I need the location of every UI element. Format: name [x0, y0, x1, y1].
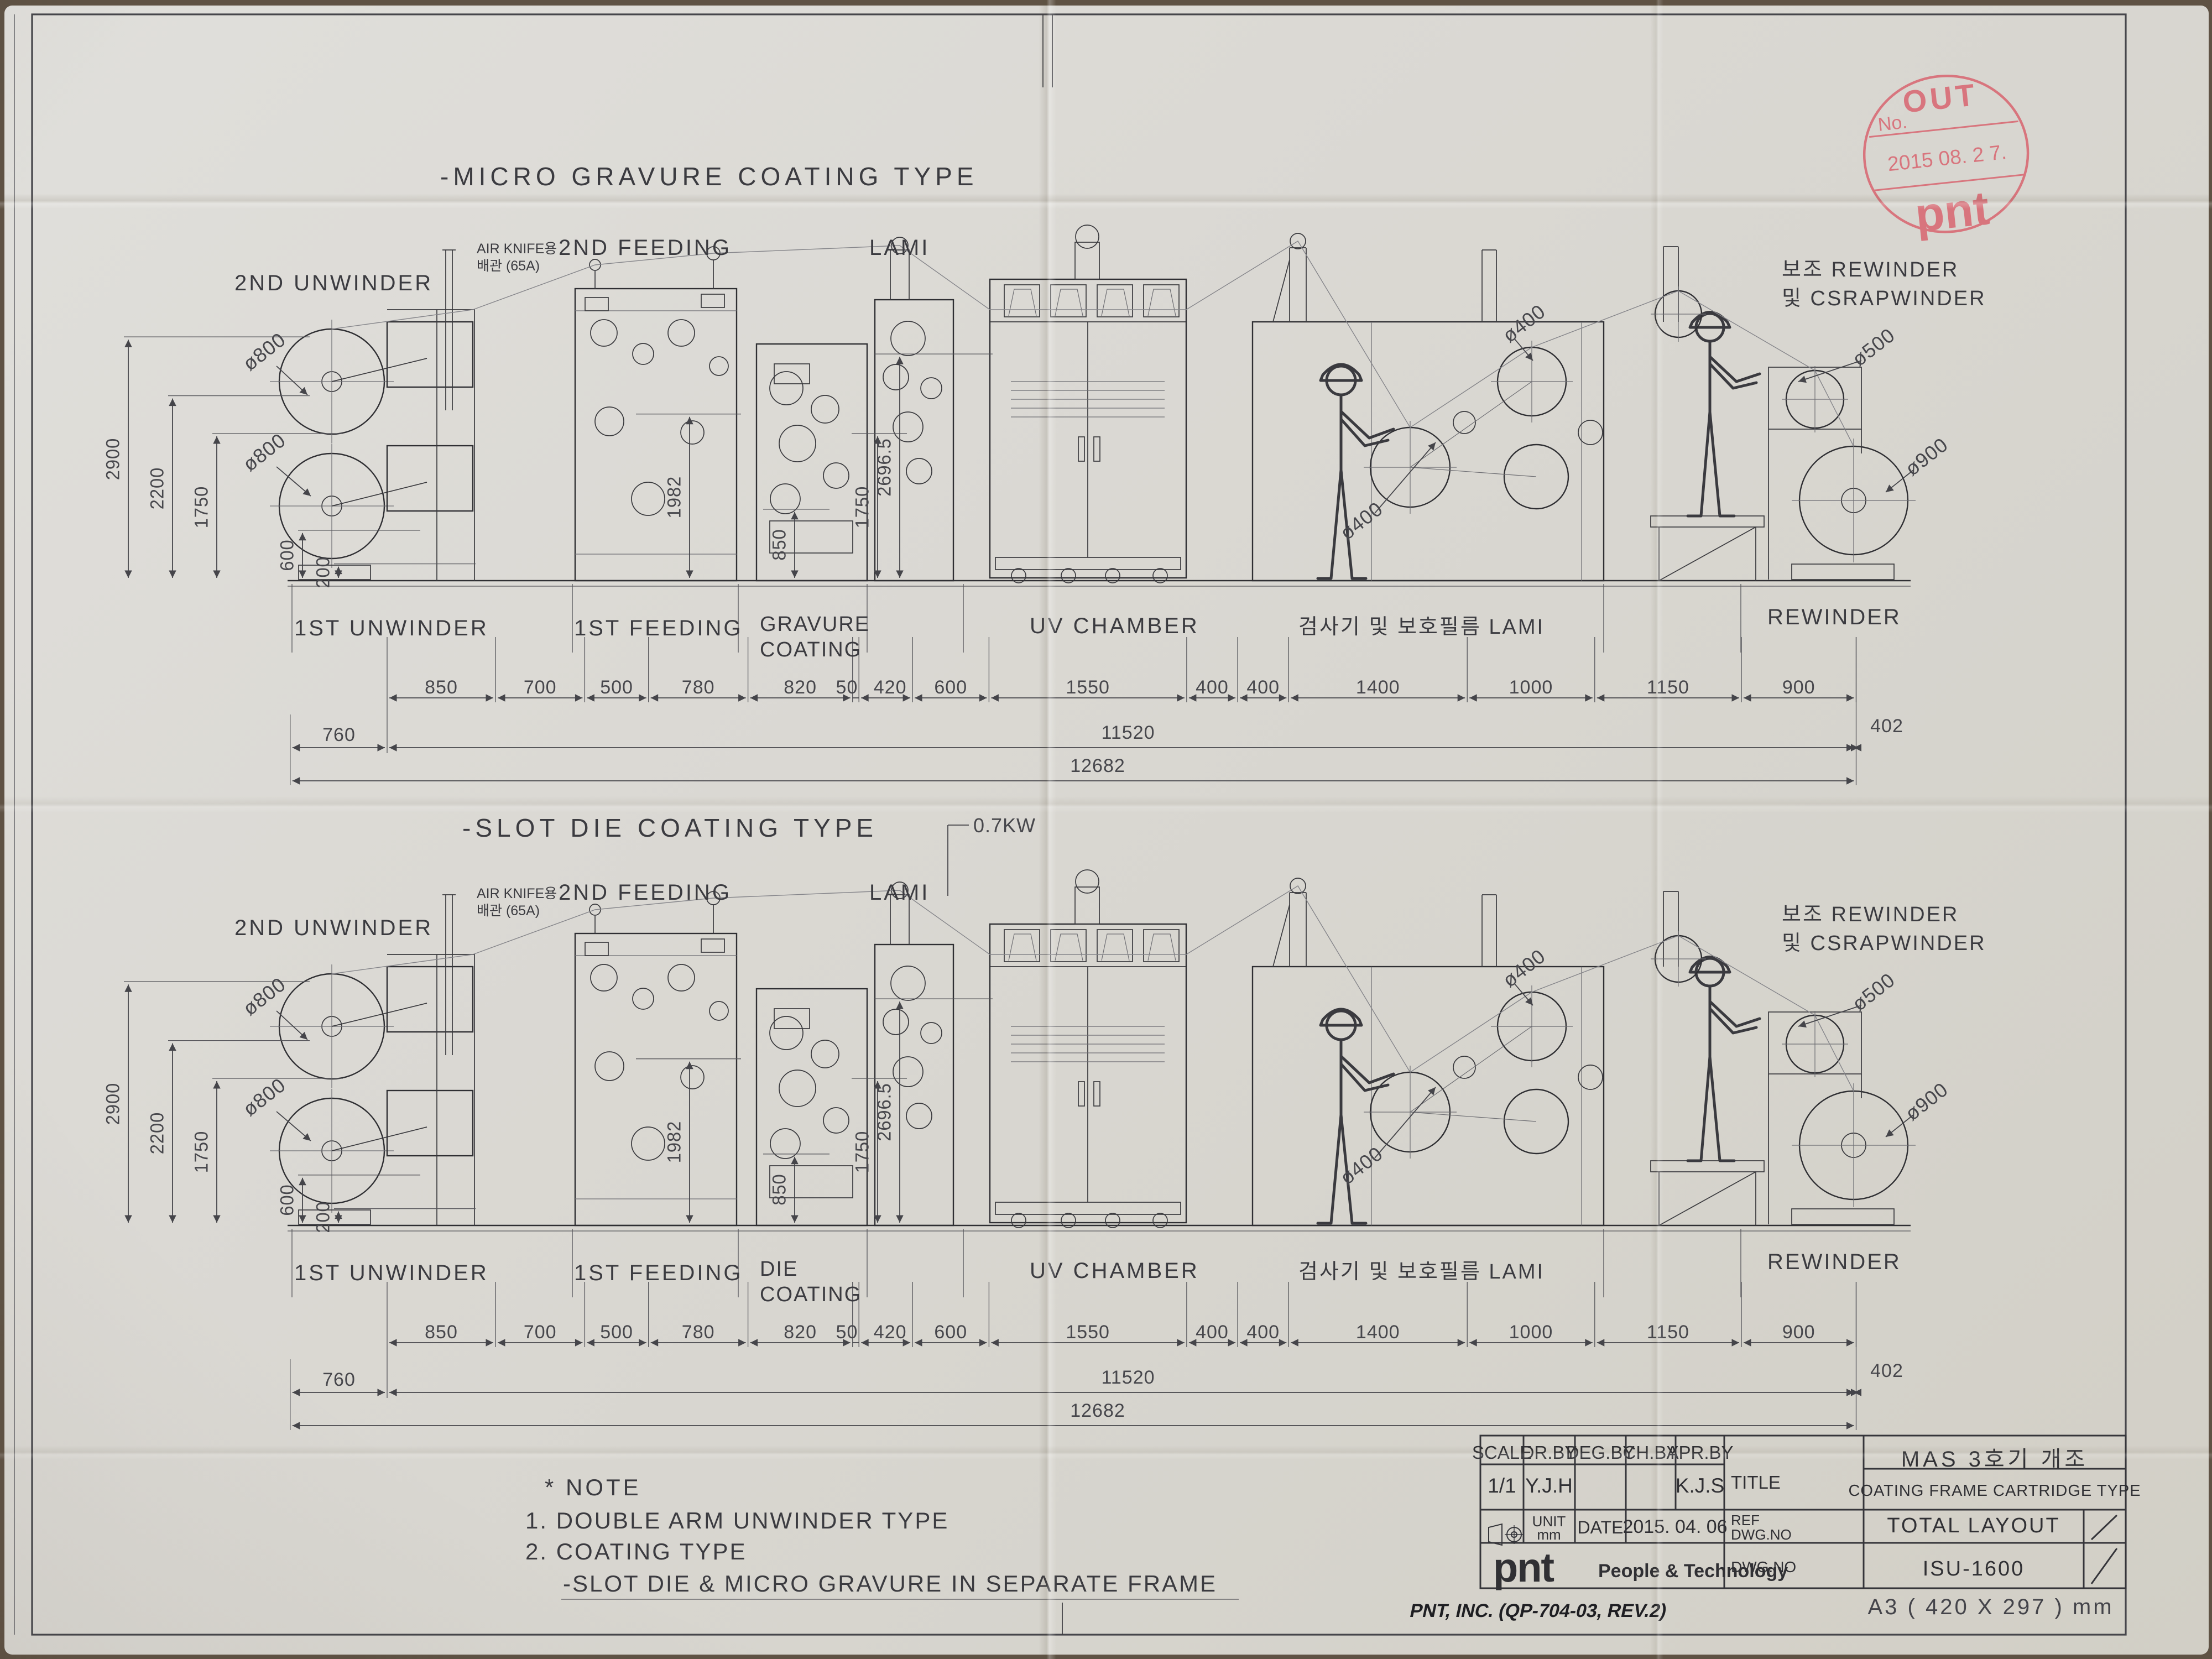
chain-dim-1400: 1400	[1356, 677, 1400, 698]
dim-12682: 12682	[1070, 755, 1125, 777]
chain-dim-500: 500	[600, 677, 633, 698]
dwg-number-value: ISU-1600	[1923, 1557, 2025, 1581]
left-dim-200: 200	[313, 556, 335, 588]
left-dim-1750: 1750	[191, 486, 213, 528]
stamp-date: 2015 08. 2 7.	[1886, 140, 2007, 175]
note-item-1: 1. DOUBLE ARM UNWINDER TYPE	[525, 1507, 949, 1534]
dim-402: 402	[1870, 716, 1903, 737]
footer-paper-size: A3 ( 420 X 297 ) mm	[1867, 1595, 2114, 1620]
chain-dim-400: 400	[1246, 1322, 1280, 1343]
stamp-logo: pnt	[1913, 181, 1992, 242]
dim-760: 760	[322, 724, 356, 746]
chain-dim-400: 400	[1246, 677, 1280, 698]
dim-11520: 11520	[1101, 722, 1155, 744]
chain-dim-850: 850	[425, 1322, 458, 1343]
out-approval-stamp: OUT No. 2015 08. 2 7. pnt	[1845, 53, 2051, 254]
project-subtitle: COATING FRAME CARTRIDGE TYPE	[1848, 1482, 2141, 1500]
rewinder-label: REWINDER	[1767, 605, 1901, 630]
chain-dim-1550: 1550	[1066, 1322, 1110, 1343]
first-feeding-label: 1ST FEEDING	[574, 616, 743, 641]
titleblock-header-aprby: APR.BY	[1666, 1442, 1733, 1463]
date-label: DATE	[1578, 1517, 1624, 1538]
air-knife-label-2: 배관 (65A)	[477, 900, 540, 920]
mid-dim-2696.5: 2696.5	[874, 1083, 896, 1141]
chain-dim-50: 50	[836, 1322, 858, 1343]
chain-dim-780: 780	[682, 677, 715, 698]
chain-dim-1150: 1150	[1647, 1322, 1689, 1343]
aux-rewinder-label-1: 보조 REWINDER	[1782, 252, 1959, 283]
chain-dim-820: 820	[784, 677, 817, 698]
chain-dim-1400: 1400	[1356, 1322, 1400, 1343]
chain-dim-600: 600	[934, 677, 967, 698]
chain-dim-400: 400	[1196, 677, 1229, 698]
second-feeding-label: 2ND FEEDING	[559, 236, 732, 260]
coating-label-1: DIE	[760, 1258, 798, 1281]
aux-rewinder-label-1: 보조 REWINDER	[1782, 897, 1959, 927]
first-unwinder-label: 1ST UNWINDER	[294, 1261, 489, 1286]
ref-label-line2: DWG.NO	[1731, 1526, 1792, 1543]
pnt-logo: pnt	[1493, 1544, 1553, 1591]
left-dim-2900: 2900	[103, 437, 124, 479]
left-dim-2900: 2900	[103, 1082, 124, 1124]
dim-760: 760	[322, 1369, 356, 1391]
mid-dim-1982: 1982	[664, 1121, 686, 1163]
scale-value: 1/1	[1488, 1474, 1516, 1498]
chain-dim-420: 420	[874, 1322, 907, 1343]
left-dim-600: 600	[277, 1185, 299, 1216]
inspection-lami-label: 검사기 및 보호필름 LAMI	[1298, 609, 1545, 640]
drawing-title-1: -MICRO GRAVURE COATING TYPE	[440, 161, 978, 191]
pnt-logo-caption: People & Technology	[1598, 1561, 1788, 1582]
power-callout: 0.7KW	[973, 814, 1036, 837]
coating-label-2: COATING	[760, 638, 862, 662]
coating-label-2: COATING	[760, 1283, 862, 1307]
rewinder-label: REWINDER	[1767, 1250, 1901, 1275]
dim-12682: 12682	[1070, 1400, 1125, 1422]
chain-dim-700: 700	[524, 1322, 557, 1343]
drawing-title-2: -SLOT DIE COATING TYPE	[462, 813, 878, 843]
chain-dim-400: 400	[1196, 1322, 1229, 1343]
chain-dim-820: 820	[784, 1322, 817, 1343]
photographed-blueprint: -MICRO GRAVURE COATING TYPE2ND UNWINDERA…	[0, 0, 2212, 1659]
aux-rewinder-label-2: 및 CSRAPWINDER	[1782, 281, 1986, 311]
mid-dim-850: 850	[769, 1174, 791, 1206]
left-dim-600: 600	[277, 540, 299, 571]
coating-label-1: GRAVURE	[760, 613, 870, 637]
chain-dim-780: 780	[682, 1322, 715, 1343]
second-unwinder-label: 2ND UNWINDER	[234, 916, 433, 941]
mid-dim-1750: 1750	[852, 486, 874, 528]
unit-value: mm	[1537, 1526, 1561, 1543]
chain-dim-50: 50	[836, 677, 858, 698]
drby-value: Y.J.H	[1525, 1474, 1573, 1498]
chain-dim-850: 850	[425, 677, 458, 698]
chain-dim-1550: 1550	[1066, 677, 1110, 698]
footer-company: PNT, INC. (QP-704-03, REV.2)	[1408, 1600, 1669, 1622]
aprby-value: K.J.S	[1676, 1474, 1724, 1498]
mid-dim-1750: 1750	[852, 1131, 874, 1173]
inspection-lami-label: 검사기 및 보호필름 LAMI	[1298, 1254, 1545, 1285]
chain-dim-700: 700	[524, 677, 557, 698]
uv-chamber-label: UV CHAMBER	[1030, 1259, 1199, 1284]
stamp-no-label: No.	[1877, 111, 1908, 135]
dim-11520: 11520	[1101, 1367, 1155, 1389]
uv-chamber-label: UV CHAMBER	[1030, 614, 1199, 639]
chain-dim-420: 420	[874, 677, 907, 698]
first-unwinder-label: 1ST UNWINDER	[294, 616, 489, 641]
second-feeding-label: 2ND FEEDING	[559, 880, 732, 905]
mid-dim-1982: 1982	[664, 476, 686, 518]
title-label: TITLE	[1731, 1472, 1781, 1493]
note-item-3: -SLOT DIE & MICRO GRAVURE IN SEPARATE FR…	[563, 1571, 1217, 1597]
stamp-word: OUT	[1901, 77, 1979, 119]
left-dim-1750: 1750	[191, 1131, 213, 1173]
note-item-2: 2. COATING TYPE	[525, 1538, 747, 1565]
mid-dim-2696.5: 2696.5	[874, 438, 896, 497]
chain-dim-1000: 1000	[1509, 677, 1553, 698]
chain-dim-600: 600	[934, 1322, 967, 1343]
date-value: 2015. 04. 06	[1623, 1516, 1727, 1538]
lami-label: LAMI	[869, 880, 930, 905]
mid-dim-850: 850	[769, 529, 791, 561]
air-knife-label-2: 배관 (65A)	[477, 255, 540, 275]
chain-dim-900: 900	[1782, 1322, 1815, 1343]
project-title: MAS 3호기 개조	[1901, 1441, 2088, 1473]
left-dim-200: 200	[313, 1201, 335, 1233]
note-header: * NOTE	[545, 1474, 641, 1501]
dim-402: 402	[1870, 1360, 1903, 1382]
first-feeding-label: 1ST FEEDING	[574, 1261, 743, 1286]
left-dim-2200: 2200	[147, 1112, 169, 1154]
aux-rewinder-label-2: 및 CSRAPWINDER	[1782, 926, 1986, 956]
chain-dim-500: 500	[600, 1322, 633, 1343]
chain-dim-1150: 1150	[1647, 677, 1689, 698]
lami-label: LAMI	[869, 236, 930, 260]
second-unwinder-label: 2ND UNWINDER	[234, 271, 433, 296]
chain-dim-1000: 1000	[1509, 1322, 1553, 1343]
chain-dim-900: 900	[1782, 677, 1815, 698]
left-dim-2200: 2200	[147, 467, 169, 509]
ref-dwg-value: TOTAL LAYOUT	[1887, 1514, 2060, 1538]
